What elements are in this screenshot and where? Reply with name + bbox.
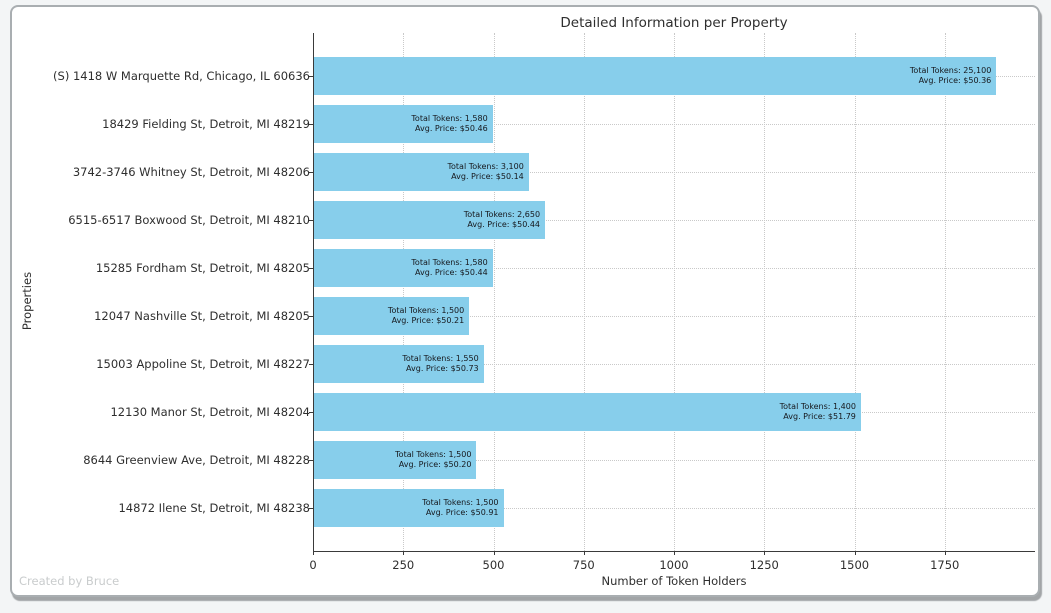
bar-annotation: Total Tokens: 1,500Avg. Price: $50.91 (422, 498, 498, 518)
annotation-avg-price: Avg. Price: $51.79 (780, 412, 856, 422)
chart-title: Detailed Information per Property (313, 15, 1035, 31)
y-tick-label: 15003 Appoline St, Detroit, MI 48227 (96, 357, 310, 371)
plot-area: Total Tokens: 25,100Avg. Price: $50.36To… (313, 33, 1035, 551)
x-gridline (764, 33, 765, 551)
y-tick-label: 18429 Fielding St, Detroit, MI 48219 (102, 117, 310, 131)
bar (314, 57, 996, 95)
annotation-total-tokens: Total Tokens: 1,500 (388, 306, 464, 316)
bar-annotation: Total Tokens: 3,100Avg. Price: $50.14 (447, 162, 523, 182)
annotation-total-tokens: Total Tokens: 1,580 (411, 258, 487, 268)
x-gridline (674, 33, 675, 551)
x-tick-mark (313, 551, 314, 555)
annotation-total-tokens: Total Tokens: 1,500 (422, 498, 498, 508)
y-tick-label: (S) 1418 W Marquette Rd, Chicago, IL 606… (53, 69, 310, 83)
y-axis-title: Properties (20, 151, 34, 451)
annotation-total-tokens: Total Tokens: 1,400 (780, 402, 856, 412)
annotation-total-tokens: Total Tokens: 1,550 (402, 354, 478, 364)
x-tick-label: 750 (573, 558, 595, 572)
x-tick-label: 1250 (750, 558, 779, 572)
x-axis-title: Number of Token Holders (313, 574, 1035, 588)
bar-annotation: Total Tokens: 1,500Avg. Price: $50.20 (395, 450, 471, 470)
x-tick-mark (494, 551, 495, 555)
annotation-avg-price: Avg. Price: $50.44 (464, 220, 540, 230)
bar-annotation: Total Tokens: 1,400Avg. Price: $51.79 (780, 402, 856, 422)
annotation-avg-price: Avg. Price: $50.44 (411, 268, 487, 278)
x-tick-mark (764, 551, 765, 555)
y-tick-label: 15285 Fordham St, Detroit, MI 48205 (96, 261, 310, 275)
annotation-avg-price: Avg. Price: $50.20 (395, 460, 471, 470)
annotation-avg-price: Avg. Price: $50.91 (422, 508, 498, 518)
annotation-avg-price: Avg. Price: $50.21 (388, 316, 464, 326)
x-gridline (945, 33, 946, 551)
annotation-avg-price: Avg. Price: $50.36 (910, 76, 991, 86)
y-tick-label: 3742-3746 Whitney St, Detroit, MI 48206 (73, 165, 310, 179)
bar-annotation: Total Tokens: 1,550Avg. Price: $50.73 (402, 354, 478, 374)
watermark: Created by Bruce (19, 574, 119, 588)
x-tick-label: 500 (483, 558, 505, 572)
x-tick-mark (584, 551, 585, 555)
x-gridline (584, 33, 585, 551)
x-tick-mark (945, 551, 946, 555)
x-tick-mark (674, 551, 675, 555)
x-tick-label: 0 (309, 558, 316, 572)
x-tick-label: 250 (392, 558, 414, 572)
y-tick-label: 6515-6517 Boxwood St, Detroit, MI 48210 (68, 213, 310, 227)
annotation-avg-price: Avg. Price: $50.73 (402, 364, 478, 374)
bar-annotation: Total Tokens: 2,650Avg. Price: $50.44 (464, 210, 540, 230)
x-gridline (494, 33, 495, 551)
annotation-total-tokens: Total Tokens: 1,500 (395, 450, 471, 460)
bar-annotation: Total Tokens: 1,580Avg. Price: $50.44 (411, 258, 487, 278)
annotation-avg-price: Avg. Price: $50.46 (411, 124, 487, 134)
bar-annotation: Total Tokens: 25,100Avg. Price: $50.36 (910, 66, 991, 86)
y-tick-label: 8644 Greenview Ave, Detroit, MI 48228 (83, 453, 310, 467)
page: Detailed Information per Property Proper… (0, 0, 1051, 613)
y-tick-label: 12047 Nashville St, Detroit, MI 48205 (94, 309, 310, 323)
x-tick-label: 1000 (659, 558, 688, 572)
y-tick-label: 12130 Manor St, Detroit, MI 48204 (110, 405, 310, 419)
annotation-avg-price: Avg. Price: $50.14 (447, 172, 523, 182)
x-tick-mark (855, 551, 856, 555)
x-tick-label: 1750 (930, 558, 959, 572)
annotation-total-tokens: Total Tokens: 1,580 (411, 114, 487, 124)
annotation-total-tokens: Total Tokens: 2,650 (464, 210, 540, 220)
y-tick-label: 14872 Ilene St, Detroit, MI 48238 (118, 501, 310, 515)
x-gridline (855, 33, 856, 551)
y-axis-spine (313, 33, 314, 551)
bar-annotation: Total Tokens: 1,500Avg. Price: $50.21 (388, 306, 464, 326)
x-tick-label: 1500 (840, 558, 869, 572)
annotation-total-tokens: Total Tokens: 3,100 (447, 162, 523, 172)
x-tick-mark (403, 551, 404, 555)
annotation-total-tokens: Total Tokens: 25,100 (910, 66, 991, 76)
chart-card: Detailed Information per Property Proper… (10, 5, 1040, 597)
bar-annotation: Total Tokens: 1,580Avg. Price: $50.46 (411, 114, 487, 134)
